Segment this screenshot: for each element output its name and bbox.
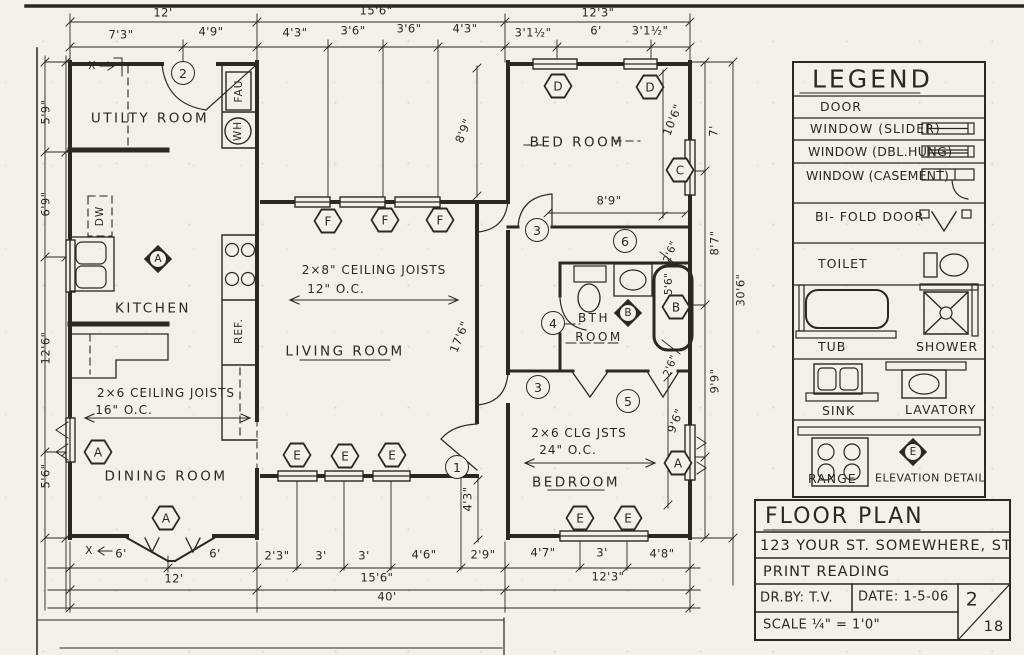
dim-top-minor-3: 3'6" bbox=[340, 25, 365, 37]
fau-label: FAU bbox=[234, 80, 245, 103]
dim-bottom-minor-5: 4'6" bbox=[411, 549, 436, 561]
dim-bottom-minor-3: 3' bbox=[315, 550, 326, 562]
dim-bottom-minor-7: 4'7" bbox=[530, 547, 555, 559]
dim-bottom-minor-4: 3' bbox=[358, 550, 369, 562]
dim-top-minor-6: 3'1½" bbox=[515, 27, 552, 39]
dim-entry: 4'3" bbox=[462, 486, 474, 511]
titleblock-sheet-total: 18 bbox=[984, 620, 1004, 635]
legend-toilet: TOILET bbox=[818, 258, 868, 271]
dim-left-0: 5'9" bbox=[40, 99, 52, 124]
dim-total-width: 40' bbox=[377, 591, 396, 603]
titleblock-address: 123 YOUR ST. SOMEWHERE, ST bbox=[760, 539, 1012, 554]
dim-bottom-minor-6: 2'9" bbox=[470, 549, 495, 561]
dim-top-minor-1: 4'9" bbox=[198, 26, 223, 38]
dim-top-minor-2: 4'3" bbox=[282, 27, 307, 39]
dim-top-minor-0: 7'3" bbox=[108, 29, 133, 41]
elevation-marker-a: A bbox=[144, 245, 172, 273]
dim-top-minor-5: 4'3" bbox=[452, 23, 477, 35]
note-dining-joists: 2×6 CEILING JOISTS bbox=[97, 387, 235, 399]
dim-left-3: 5'6" bbox=[40, 463, 52, 488]
titleblock-subtitle: PRINT READING bbox=[763, 565, 890, 580]
door-marker-3-bedroom: 3 bbox=[526, 375, 550, 399]
note-living-joists: 2×8" CEILING JOISTS bbox=[302, 264, 447, 276]
titleblock-title: FLOOR PLAN bbox=[765, 506, 924, 528]
refrigerator-label: REF. bbox=[234, 318, 245, 344]
legend-door: DOOR bbox=[820, 101, 862, 114]
dim-right-0: 7' bbox=[708, 125, 720, 136]
dim-right-total: 30'6" bbox=[735, 274, 747, 307]
dishwasher-label: DW bbox=[95, 206, 106, 226]
dim-left-1: 6'9" bbox=[40, 191, 52, 216]
room-label-bath-2: ROOM bbox=[575, 331, 623, 343]
dim-bottom-minor-8: 3' bbox=[596, 547, 607, 559]
dim-bottom-major-2: 12'3" bbox=[592, 571, 625, 583]
dim-top-major-2: 12'3" bbox=[582, 7, 615, 19]
room-label-bath-1: BTH bbox=[578, 312, 610, 324]
door-marker-1: 1 bbox=[445, 455, 469, 479]
water-heater-label: WH bbox=[233, 121, 244, 141]
room-label-bedroom: BEDROOM bbox=[532, 476, 620, 490]
note-bedroom-joists: 2×6 CLG JSTS bbox=[531, 427, 626, 439]
drawing-sheet: 12' 15'6" 12'3" 7'3" 4'9" 4'3" 3'6" 3'6"… bbox=[0, 0, 1024, 655]
dim-bottom-major-0: 12' bbox=[164, 573, 183, 585]
titleblock-scale: SCALE ¼" = 1'0" bbox=[763, 619, 880, 632]
dim-bottom-minor-0: 6' bbox=[115, 548, 126, 560]
x-mark-bottom: X bbox=[85, 546, 93, 557]
dim-right-2: 9'9" bbox=[709, 368, 721, 393]
legend-tub: TUB bbox=[818, 341, 846, 354]
room-marker-5-bedroom: 5 bbox=[616, 389, 640, 413]
door-marker-2: 2 bbox=[171, 61, 195, 85]
room-label-utility: UTILTY ROOM bbox=[91, 112, 209, 126]
room-label-kitchen: KITCHEN bbox=[115, 302, 191, 316]
legend-shower: SHOWER bbox=[916, 341, 978, 354]
dim-bottom-major-1: 15'6" bbox=[361, 572, 394, 584]
legend-elevation-detail: ELEVATION DETAIL bbox=[875, 473, 985, 484]
legend-elevation-marker: E bbox=[899, 438, 927, 466]
titleblock-sheet-number: 2 bbox=[966, 591, 979, 610]
door-marker-3-bed: 3 bbox=[525, 218, 549, 242]
note-bedroom-spacing: 24" O.C. bbox=[539, 444, 597, 456]
room-marker-4-bath: 4 bbox=[541, 311, 565, 335]
dim-bed-width: 8'9" bbox=[596, 195, 621, 207]
room-label-living: LIVING ROOM bbox=[285, 345, 404, 359]
legend-lavatory: LAVATORY bbox=[905, 404, 976, 417]
dim-left-2: 12'6" bbox=[40, 332, 52, 365]
elevation-marker-b: B bbox=[614, 299, 642, 327]
titleblock-drawn-by: DR.BY: T.V. bbox=[760, 592, 833, 605]
legend-bifold-door: BI- FOLD DOOR bbox=[815, 211, 924, 224]
dim-bottom-minor-9: 4'8" bbox=[649, 548, 674, 560]
dim-top-major-0: 12' bbox=[153, 7, 172, 19]
dim-bottom-minor-2: 2'3" bbox=[264, 550, 289, 562]
bay-window bbox=[127, 538, 214, 561]
x-mark-top: X bbox=[88, 61, 96, 72]
floorplan-linework bbox=[0, 0, 1024, 655]
note-living-spacing: 12" O.C. bbox=[307, 283, 365, 295]
room-label-dining: DINING ROOM bbox=[104, 470, 227, 484]
dim-top-major-1: 15'6" bbox=[360, 5, 393, 17]
legend-window-casement: WINDOW (CASEMENT) bbox=[806, 170, 949, 183]
legend-title: LEGEND bbox=[812, 67, 933, 92]
dim-right-1: 8'7" bbox=[709, 230, 721, 255]
note-dining-spacing: 16" O.C. bbox=[95, 404, 153, 416]
dim-top-minor-7: 6' bbox=[590, 25, 601, 37]
legend-window-dbl-hung: WINDOW (DBL.HUNG) bbox=[808, 146, 952, 159]
legend-window-slider: WINDOW (SLIDER) bbox=[810, 123, 941, 136]
dim-bottom-minor-1: 6' bbox=[209, 548, 220, 560]
dim-top-minor-4: 3'6" bbox=[396, 23, 421, 35]
titleblock-date: DATE: 1-5-06 bbox=[858, 591, 949, 604]
legend-sink: SINK bbox=[822, 405, 855, 418]
dim-top-minor-8: 3'1½" bbox=[632, 25, 669, 37]
room-label-bed: BED ROOM bbox=[530, 136, 625, 150]
legend-range: RANGE bbox=[808, 473, 857, 486]
room-marker-6-hall: 6 bbox=[613, 229, 637, 253]
dim-tub-length: 5'6" bbox=[664, 273, 675, 295]
